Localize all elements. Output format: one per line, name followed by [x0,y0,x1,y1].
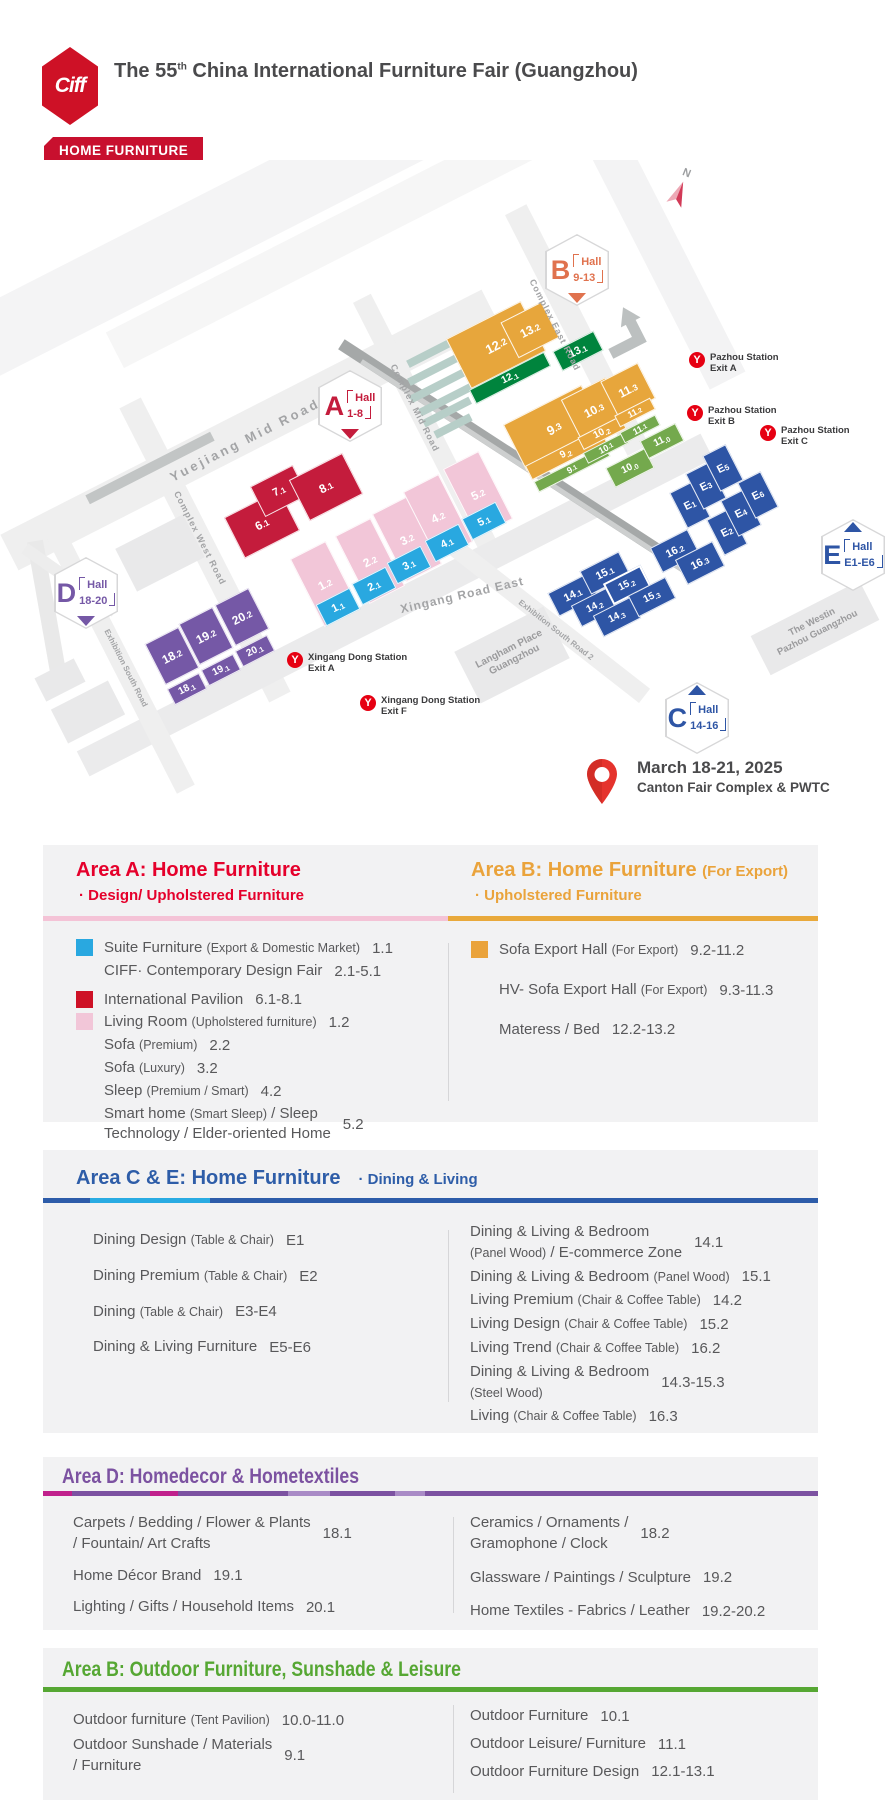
legend-item-number: 5.2 [343,1116,364,1133]
location-pin-icon [583,758,621,805]
hall-badge-A: AHall1-8 [318,370,382,442]
legend-item-number: 11.1 [658,1736,686,1753]
legend-item: Carpets / Bedding / Flower & Plants/ Fou… [73,1513,413,1555]
area-ce-rule [43,1198,818,1203]
area-a-subtitle: · Design/ Upholstered Furniture [79,887,304,904]
legend-item-text: Home Textiles - Fabrics / Leather [470,1601,690,1622]
metro-station: YXingang Dong StationExit F [360,695,480,718]
legend-item-number: 16.2 [691,1340,720,1357]
legend-item: Outdoor Sunshade / Materials/ Furniture9… [73,1735,413,1777]
legend-item-number: 19.1 [213,1567,242,1584]
legend-item-number: 10.0-11.0 [282,1712,344,1729]
legend-item-text: Outdoor Leisure/ Furniture [470,1734,646,1755]
event-date-line1: March 18-21, 2025 [637,758,830,778]
area-b-outdoor-title: Area B: Outdoor Furniture, Sunshade & Le… [62,1658,461,1682]
legend-item-text: Home Décor Brand [73,1566,201,1587]
legend-item-text: HV- Sofa Export Hall (For Export) [499,980,707,1001]
compass-arrow-icon [664,175,694,210]
legend-item-text: Dining & Living & Bedroom(Panel Wood) / … [470,1222,682,1264]
legend-item: Home Décor Brand19.1 [73,1566,413,1587]
hall-badge-E: EHallE1-E6 [821,519,885,591]
legend-item-text: Living Trend (Chair & Coffee Table) [470,1338,679,1359]
badge-pointer [568,293,586,303]
legend-item: Living Room (Upholstered furniture)1.2 [76,1012,458,1033]
legend-item-number: 18.2 [640,1525,669,1542]
legend-item-number: 10.1 [600,1708,629,1725]
metro-station-label: Xingang Dong StationExit F [381,695,480,718]
legend-item-text: Sofa Export Hall (For Export) [499,940,678,961]
area-ce-right-list: Dining & Living & Bedroom(Panel Wood) / … [470,1222,818,1430]
legend-item: Dining & Living FurnitureE5-E6 [93,1337,443,1358]
legend-item-number: 4.2 [261,1083,282,1100]
page-title: The 55th China International Furniture F… [114,60,638,83]
area-d-title: Area D: Homedecor & Hometextiles [62,1465,359,1489]
legend-item-text: Dining Design (Table & Chair) [93,1230,274,1251]
legend-item-text: Outdoor Furniture [470,1706,588,1727]
legend-item-number: 1.1 [372,940,393,957]
legend-item-number: 3.2 [197,1060,218,1077]
legend-item-number: 2.1-5.1 [334,963,381,980]
legend-item: Dining & Living & Bedroom (Panel Wood)15… [470,1267,818,1288]
legend-item: Dining (Table & Chair)E3-E4 [93,1302,443,1323]
legend-item-text: Sleep (Premium / Smart) [104,1081,249,1102]
legend-item-number: E2 [299,1268,317,1285]
area-ce-subtitle: · Dining & Living [358,1171,477,1188]
legend-item-number: 14.3-15.3 [661,1374,724,1391]
metro-icon: Y [689,352,705,368]
metro-station-label: Pazhou StationExit A [710,352,779,375]
legend-item-number: 20.1 [306,1599,335,1616]
legend-swatch [76,962,93,979]
ciff-logo-text: Ciff [55,74,86,98]
legend-item: Dining Design (Table & Chair)E1 [93,1230,443,1251]
legend-item: Dining & Living & Bedroom(Panel Wood) / … [470,1222,818,1264]
legend-item: Sofa Export Hall (For Export)9.2-11.2 [471,940,821,961]
badge-pointer [844,522,862,532]
hall-letter: A [325,391,345,422]
legend-area-c-e: Area C & E: Home Furniture· Dining & Liv… [43,1150,818,1433]
metro-icon: Y [687,405,703,421]
legend-item-text: Living Design (Chair & Coffee Table) [470,1314,687,1335]
column-divider [453,1705,454,1793]
area-ce-left-list: Dining Design (Table & Chair)E1Dining Pr… [93,1230,443,1373]
legend-item-number: 6.1-8.1 [255,991,302,1008]
map-place-label: The WestinPazhou Guangzhou [751,581,880,676]
legend-swatch [76,1082,93,1099]
title-main: The 55 [114,60,177,82]
area-d-right-list: Ceramics / Ornaments /Gramophone / Clock… [470,1513,818,1635]
ciff-logo: Ciff [42,47,98,125]
legend-item-text: Living Room (Upholstered furniture) [104,1012,317,1033]
legend-item: Sofa (Premium)2.2 [76,1035,458,1056]
legend-item-number: 19.2-20.2 [702,1603,765,1620]
hall-badge-B: BHall9-13 [545,234,609,306]
legend-item-number: 12.2-13.2 [612,1021,675,1038]
legend-area-b-outdoor: Area B: Outdoor Furniture, Sunshade & Le… [43,1648,818,1800]
event-venue-line2: Canton Fair Complex & PWTC [637,780,830,795]
area-a-b-rule [43,916,818,921]
legend-item-number: 14.1 [694,1234,723,1251]
area-ce-title: Area C & E: Home Furniture· Dining & Liv… [76,1167,478,1190]
title-rest: China International Furniture Fair (Guan… [187,60,638,82]
legend-item-text: International Pavilion [104,990,243,1011]
hall-block-8.1: 8.1 [289,453,363,521]
legend-item: Living Design (Chair & Coffee Table)15.2 [470,1314,818,1335]
hall-badge-C: CHall14-16 [665,682,729,754]
legend-swatch [471,941,488,958]
area-b-outdoor-right-list: Outdoor Furniture10.1Outdoor Leisure/ Fu… [470,1706,818,1789]
hall-letter: D [57,578,77,609]
metro-icon: Y [287,652,303,668]
legend-item-number: 9.1 [284,1747,305,1764]
page: { "header": { "logo_text": "Ciff", "titl… [0,0,890,1820]
legend-item-number: 15.2 [699,1316,728,1333]
legend-swatch [76,1036,93,1053]
legend-item: Living Trend (Chair & Coffee Table)16.2 [470,1338,818,1359]
metro-station: YPazhou StationExit A [689,352,779,375]
legend-item: Dining & Living & Bedroom(Steel Wood)14.… [470,1362,818,1404]
legend-item-text: Sofa (Luxury) [104,1058,185,1079]
legend-swatch [76,1059,93,1076]
legend-item-text: Glassware / Paintings / Sculpture [470,1568,691,1589]
legend-item-number: 18.1 [323,1525,352,1542]
legend-item-number: E1 [286,1232,304,1249]
metro-station-label: Pazhou StationExit C [781,425,850,448]
venue-map: N March 18-21, 2025 Canton Fair Complex … [0,160,890,815]
area-a-item-list: Suite Furniture (Export & Domestic Marke… [76,938,458,1147]
area-d-left-list: Carpets / Bedding / Flower & Plants/ Fou… [73,1513,413,1629]
legend-item-text: Dining & Living & Bedroom(Steel Wood) [470,1362,649,1404]
legend-item-text: Materess / Bed [499,1020,600,1041]
hall-letter: B [551,255,571,286]
legend-item: Outdoor Leisure/ Furniture11.1 [470,1734,818,1755]
legend-item-text: Dining (Table & Chair) [93,1302,223,1323]
legend-item-text: Smart home (Smart Sleep) / SleepTechnolo… [104,1104,331,1146]
legend-item-text: Outdoor furniture (Tent Pavilion) [73,1710,270,1731]
badge-pointer [341,429,359,439]
legend-item: Sofa (Luxury)3.2 [76,1058,458,1079]
legend-item-number: E5-E6 [269,1339,311,1356]
area-b-outdoor-left-list: Outdoor furniture (Tent Pavilion)10.0-11… [73,1710,413,1780]
legend-area-d: Area D: Homedecor & Hometextiles Carpets… [43,1457,818,1630]
legend-item: Sleep (Premium / Smart)4.2 [76,1081,458,1102]
legend-item: Ceramics / Ornaments /Gramophone / Clock… [470,1513,818,1555]
legend-swatch [76,1013,93,1030]
area-a-title: Area A: Home Furniture [76,859,301,882]
legend-item-number: 15.1 [742,1268,771,1285]
legend-item: Outdoor Furniture10.1 [470,1706,818,1727]
legend-item: Living Premium (Chair & Coffee Table)14.… [470,1290,818,1311]
legend-item-number: 1.2 [329,1014,350,1031]
legend-swatch [471,981,488,998]
legend-item: Living (Chair & Coffee Table)16.3 [470,1406,818,1427]
legend-item: CIFF· Contemporary Design Fair2.1-5.1 [76,961,458,982]
legend-item: Suite Furniture (Export & Domestic Marke… [76,938,458,959]
legend-item-text: Dining Premium (Table & Chair) [93,1266,287,1287]
legend-item-text: Lighting / Gifts / Household Items [73,1597,294,1618]
legend-item-text: Dining & Living & Bedroom (Panel Wood) [470,1267,730,1288]
legend-item-number: E3-E4 [235,1303,277,1320]
metro-station-label: Xingang Dong StationExit A [308,652,407,675]
hall-letter: C [668,703,688,734]
hall-badge-D: DHall18-20 [54,557,118,629]
legend-item-text: Sofa (Premium) [104,1035,197,1056]
legend-item-number: 2.2 [209,1037,230,1054]
legend-swatch [76,1105,93,1122]
legend-item: Lighting / Gifts / Household Items20.1 [73,1597,413,1618]
legend-item: International Pavilion6.1-8.1 [76,990,458,1011]
legend-item: Dining Premium (Table & Chair)E2 [93,1266,443,1287]
legend-item-text: Outdoor Furniture Design [470,1762,639,1783]
legend-item: Outdoor Furniture Design12.1-13.1 [470,1762,818,1783]
column-divider [448,1230,449,1402]
legend-swatch [76,991,93,1008]
hall-letter: E [823,540,841,571]
metro-icon: Y [760,425,776,441]
legend-item-text: Carpets / Bedding / Flower & Plants/ Fou… [73,1513,311,1555]
legend-item-text: Suite Furniture (Export & Domestic Marke… [104,938,360,959]
legend-swatch [471,1021,488,1038]
legend-item-number: 12.1-13.1 [651,1763,714,1780]
legend-item-text: Outdoor Sunshade / Materials/ Furniture [73,1735,272,1777]
legend-item: Smart home (Smart Sleep) / SleepTechnolo… [76,1104,458,1146]
legend-item-number: 16.3 [649,1408,678,1425]
event-date: March 18-21, 2025 Canton Fair Complex & … [583,758,830,805]
badge-pointer [77,616,95,626]
compass: N [662,164,698,215]
legend-item-text: Living Premium (Chair & Coffee Table) [470,1290,701,1311]
legend-item: Glassware / Paintings / Sculpture19.2 [470,1568,818,1589]
legend-swatch [76,939,93,956]
legend-item-number: 9.2-11.2 [690,942,744,959]
legend-item-number: 9.3-11.3 [719,982,773,999]
legend-item-text: Living (Chair & Coffee Table) [470,1406,637,1427]
legend-item-number: 19.2 [703,1569,732,1586]
metro-icon: Y [360,695,376,711]
legend-item-text: CIFF· Contemporary Design Fair [104,961,322,982]
legend-item-text: Ceramics / Ornaments /Gramophone / Clock [470,1513,628,1555]
legend-item: Outdoor furniture (Tent Pavilion)10.0-11… [73,1710,413,1731]
area-b-item-list: Sofa Export Hall (For Export)9.2-11.2HV-… [471,940,821,1059]
legend-item-text: Dining & Living Furniture [93,1337,257,1358]
legend-item-number: 14.2 [713,1292,742,1309]
area-d-rule [43,1491,818,1496]
column-divider [453,1517,454,1613]
badge-pointer [688,685,706,695]
area-b-title: Area B: Home Furniture (For Export) [471,859,788,882]
title-sup: th [177,61,186,72]
area-b-outdoor-rule [43,1687,818,1692]
legend-item: Materess / Bed12.2-13.2 [471,1020,821,1041]
legend-item: Home Textiles - Fabrics / Leather19.2-20… [470,1601,818,1622]
area-b-subtitle: · Upholstered Furniture [475,887,642,904]
legend-area-a-and-b: Area A: Home Furniture · Design/ Upholst… [43,845,818,1122]
legend-item: HV- Sofa Export Hall (For Export)9.3-11.… [471,980,821,1001]
metro-station: YPazhou StationExit C [760,425,850,448]
metro-station: YXingang Dong StationExit A [287,652,407,675]
